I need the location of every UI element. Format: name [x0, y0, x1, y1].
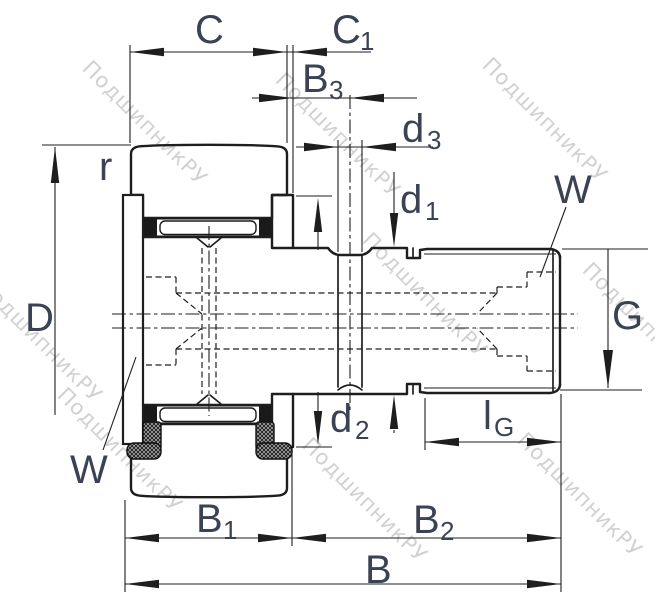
cam-follower-dimensional-drawing: ПодшипникРУ ПодшипникРУ ПодшипникРУ Подш…: [0, 0, 655, 611]
axial-hole-hidden-lines: [146, 272, 556, 371]
needle-roller-band-top: [143, 218, 272, 237]
dim-label-W-left: W: [70, 448, 108, 492]
dim-label-B3-sub: 3: [329, 75, 343, 105]
dim-label-G: G: [612, 294, 643, 338]
dim-label-C1-sub: 1: [360, 26, 374, 56]
stud-flange-bottom-section: [272, 394, 293, 447]
watermark: ПодшипникРУ: [0, 273, 107, 408]
watermark: ПодшипникРУ: [478, 53, 613, 188]
outer-ring-top-section: [131, 145, 287, 218]
stud-flange-top-section: [272, 195, 293, 248]
watermark: ПодшипникРУ: [513, 428, 648, 563]
dim-label-lG: l: [483, 394, 492, 438]
dim-label-d2-sub: 2: [355, 415, 369, 445]
dim-label-B2-sub: 2: [440, 516, 454, 546]
dim-label-C1: C: [332, 8, 361, 52]
dim-label-B1-sub: 1: [223, 515, 237, 545]
dim-label-D: D: [25, 296, 54, 340]
dim-label-C: C: [195, 8, 224, 52]
dim-B1-B2: [125, 534, 561, 542]
dim-label-d2: d: [330, 397, 352, 441]
stud-surface-top: [293, 248, 560, 258]
dim-label-lG-sub: G: [494, 412, 514, 442]
dim-d2: [314, 198, 322, 445]
dim-label-d3: d: [402, 107, 424, 151]
watermark: ПодшипникРУ: [78, 56, 213, 191]
drawing-canvas: ПодшипникРУ ПодшипникРУ ПодшипникРУ Подш…: [0, 0, 655, 611]
dim-label-d3-sub: 3: [427, 125, 441, 155]
dim-label-r: r: [99, 145, 112, 189]
end-washer: [123, 195, 143, 444]
needle-roller-band-bottom: [143, 405, 272, 424]
dim-label-B: B: [365, 548, 392, 592]
dim-label-d1-sub: 1: [425, 196, 439, 226]
dim-label-W-right: W: [554, 168, 592, 212]
dim-label-B1: B: [196, 497, 223, 541]
dim-B: [125, 580, 561, 588]
dim-label-d1: d: [400, 178, 422, 222]
dim-label-B2: B: [413, 498, 440, 542]
dim-label-B3: B: [302, 57, 329, 101]
seal-right: [256, 422, 292, 459]
stud-surface-bottom: [293, 384, 560, 394]
